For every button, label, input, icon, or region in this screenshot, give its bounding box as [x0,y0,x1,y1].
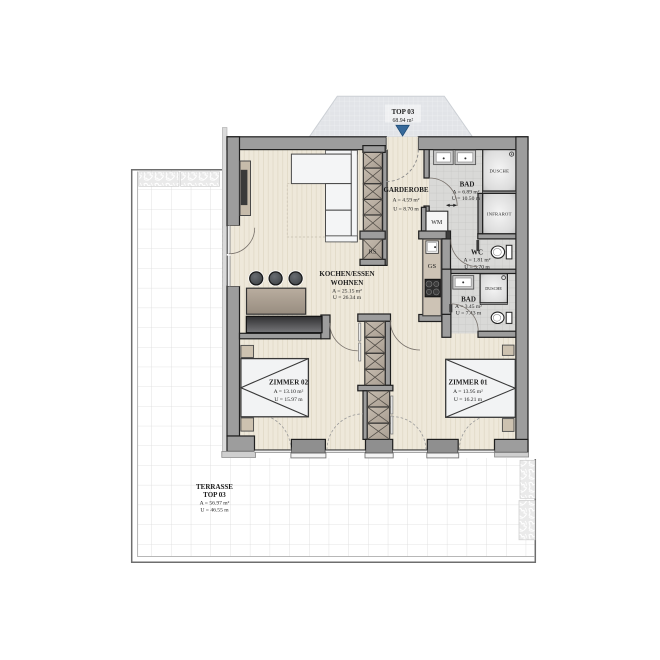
svg-text:U = 8.70 m: U = 8.70 m [393,206,419,212]
svg-text:ZIMMER 02: ZIMMER 02 [269,379,309,387]
svg-text:U = 16.21 m: U = 16.21 m [454,397,483,403]
svg-text:A = 13.10 m²: A = 13.10 m² [274,389,304,395]
svg-text:U = 7.43 m: U = 7.43 m [456,311,482,317]
svg-text:GS: GS [428,263,437,270]
svg-text:A = 1.81 m²: A = 1.81 m² [464,258,491,264]
svg-text:INFRAROT: INFRAROT [487,212,512,217]
svg-text:U = 15.97 m: U = 15.97 m [274,397,303,403]
svg-text:A = 4.59 m²: A = 4.59 m² [393,197,420,203]
svg-text:A = 6.89 m²: A = 6.89 m² [453,189,480,195]
svg-text:TOP 03: TOP 03 [203,491,226,499]
svg-text:TERRASSE: TERRASSE [196,483,233,491]
svg-text:RS: RS [369,249,377,256]
svg-text:A = 13.95 m²: A = 13.95 m² [453,389,483,395]
svg-text:ZIMMER 01: ZIMMER 01 [448,379,488,387]
svg-text:U = 26.34 m: U = 26.34 m [333,295,362,301]
svg-text:KOCHEN/ESSEN: KOCHEN/ESSEN [319,270,374,278]
svg-text:A = 56.97 m²: A = 56.97 m² [200,501,230,507]
svg-text:A = 25.15 m²: A = 25.15 m² [332,288,362,294]
svg-text:DUSCHE: DUSCHE [490,169,510,174]
svg-text:BAD: BAD [460,181,475,189]
svg-text:68.94 m²: 68.94 m² [393,118,414,124]
svg-text:DUSCHE: DUSCHE [485,286,502,291]
svg-text:WOHNEN: WOHNEN [331,279,364,287]
svg-text:WM: WM [431,220,443,226]
svg-text:TOP 03: TOP 03 [392,108,415,116]
svg-text:BAD: BAD [461,295,476,303]
svg-text:U = 46.55 m: U = 46.55 m [200,507,229,513]
svg-text:GARDEROBE: GARDEROBE [383,186,428,194]
